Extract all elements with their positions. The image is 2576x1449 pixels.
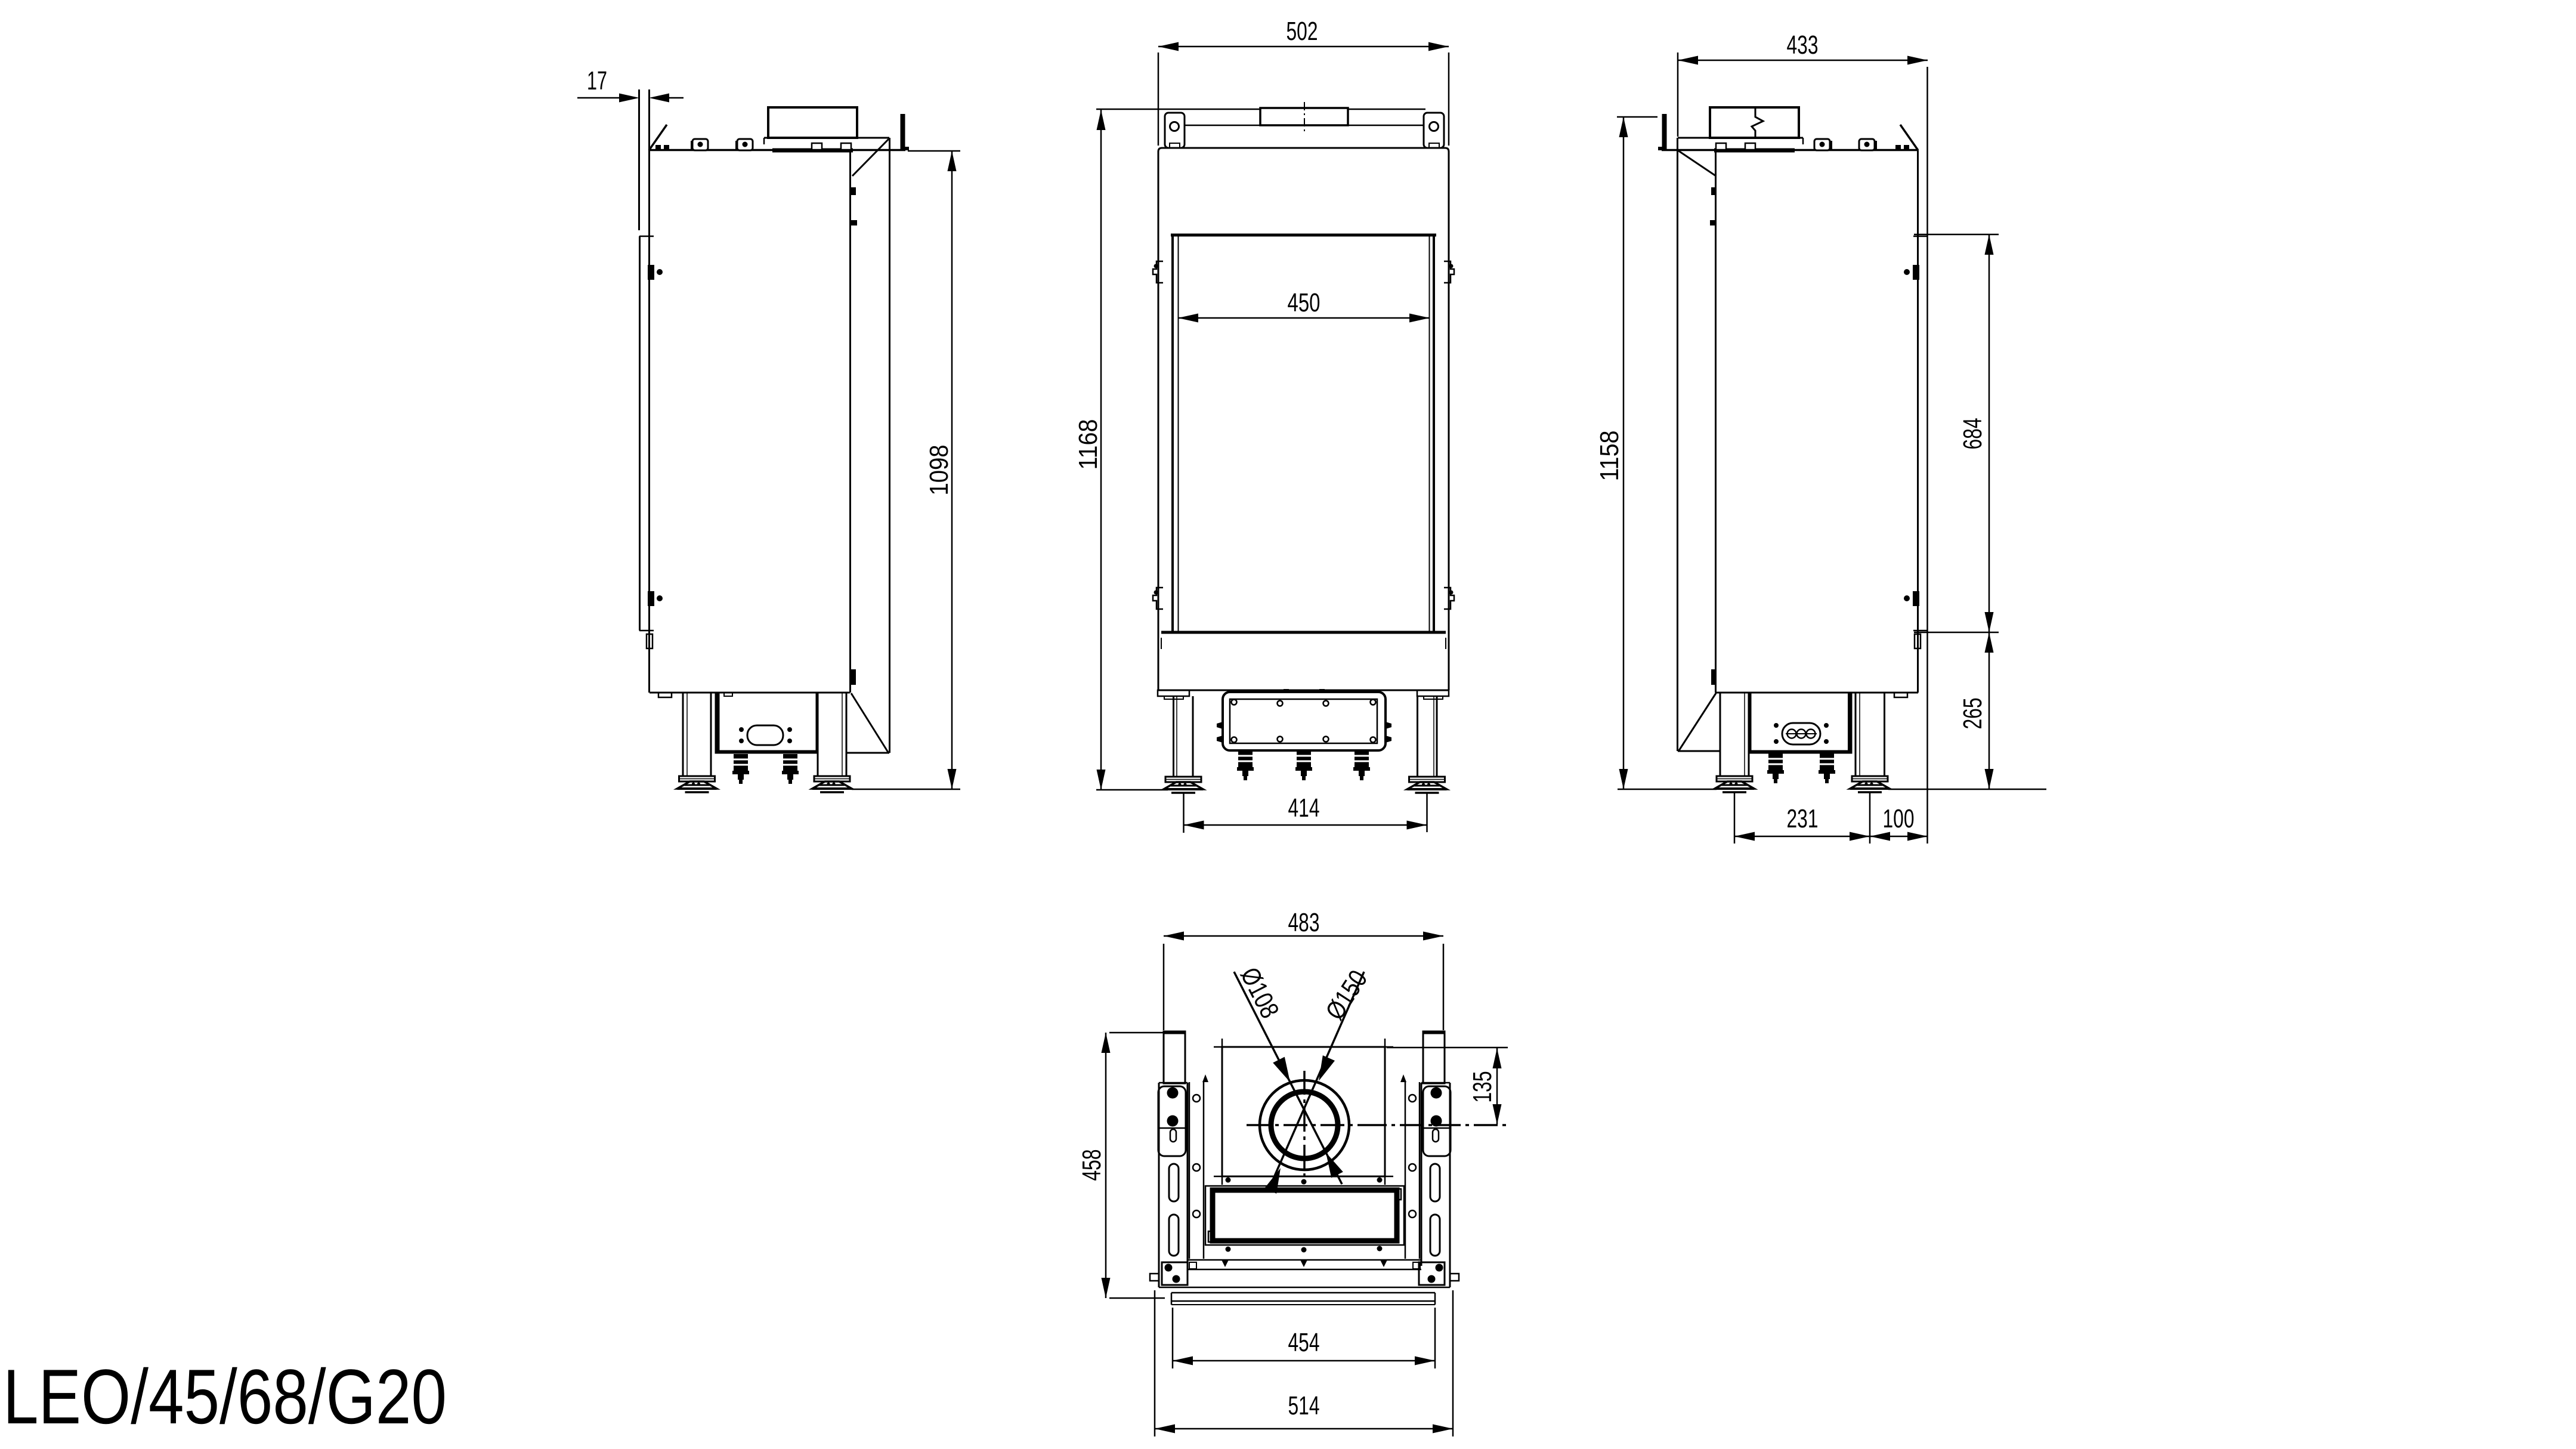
svg-text:1158: 1158 xyxy=(1595,431,1624,481)
svg-text:502: 502 xyxy=(1287,17,1318,46)
svg-text:135: 135 xyxy=(1468,1071,1497,1103)
svg-text:450: 450 xyxy=(1288,288,1321,317)
svg-text:458: 458 xyxy=(1077,1150,1106,1181)
svg-text:433: 433 xyxy=(1787,30,1819,60)
svg-text:100: 100 xyxy=(1883,804,1915,833)
svg-text:684: 684 xyxy=(1958,418,1987,450)
svg-text:454: 454 xyxy=(1288,1328,1320,1357)
svg-text:231: 231 xyxy=(1787,804,1819,833)
svg-text:265: 265 xyxy=(1958,698,1987,730)
svg-text:483: 483 xyxy=(1288,908,1320,937)
svg-text:514: 514 xyxy=(1288,1391,1320,1420)
svg-text:1168: 1168 xyxy=(1074,419,1103,470)
svg-text:414: 414 xyxy=(1288,793,1320,823)
svg-text:17: 17 xyxy=(587,66,607,95)
svg-text:LEO/45/68/G20: LEO/45/68/G20 xyxy=(3,1353,447,1440)
svg-text:1098: 1098 xyxy=(924,445,954,496)
